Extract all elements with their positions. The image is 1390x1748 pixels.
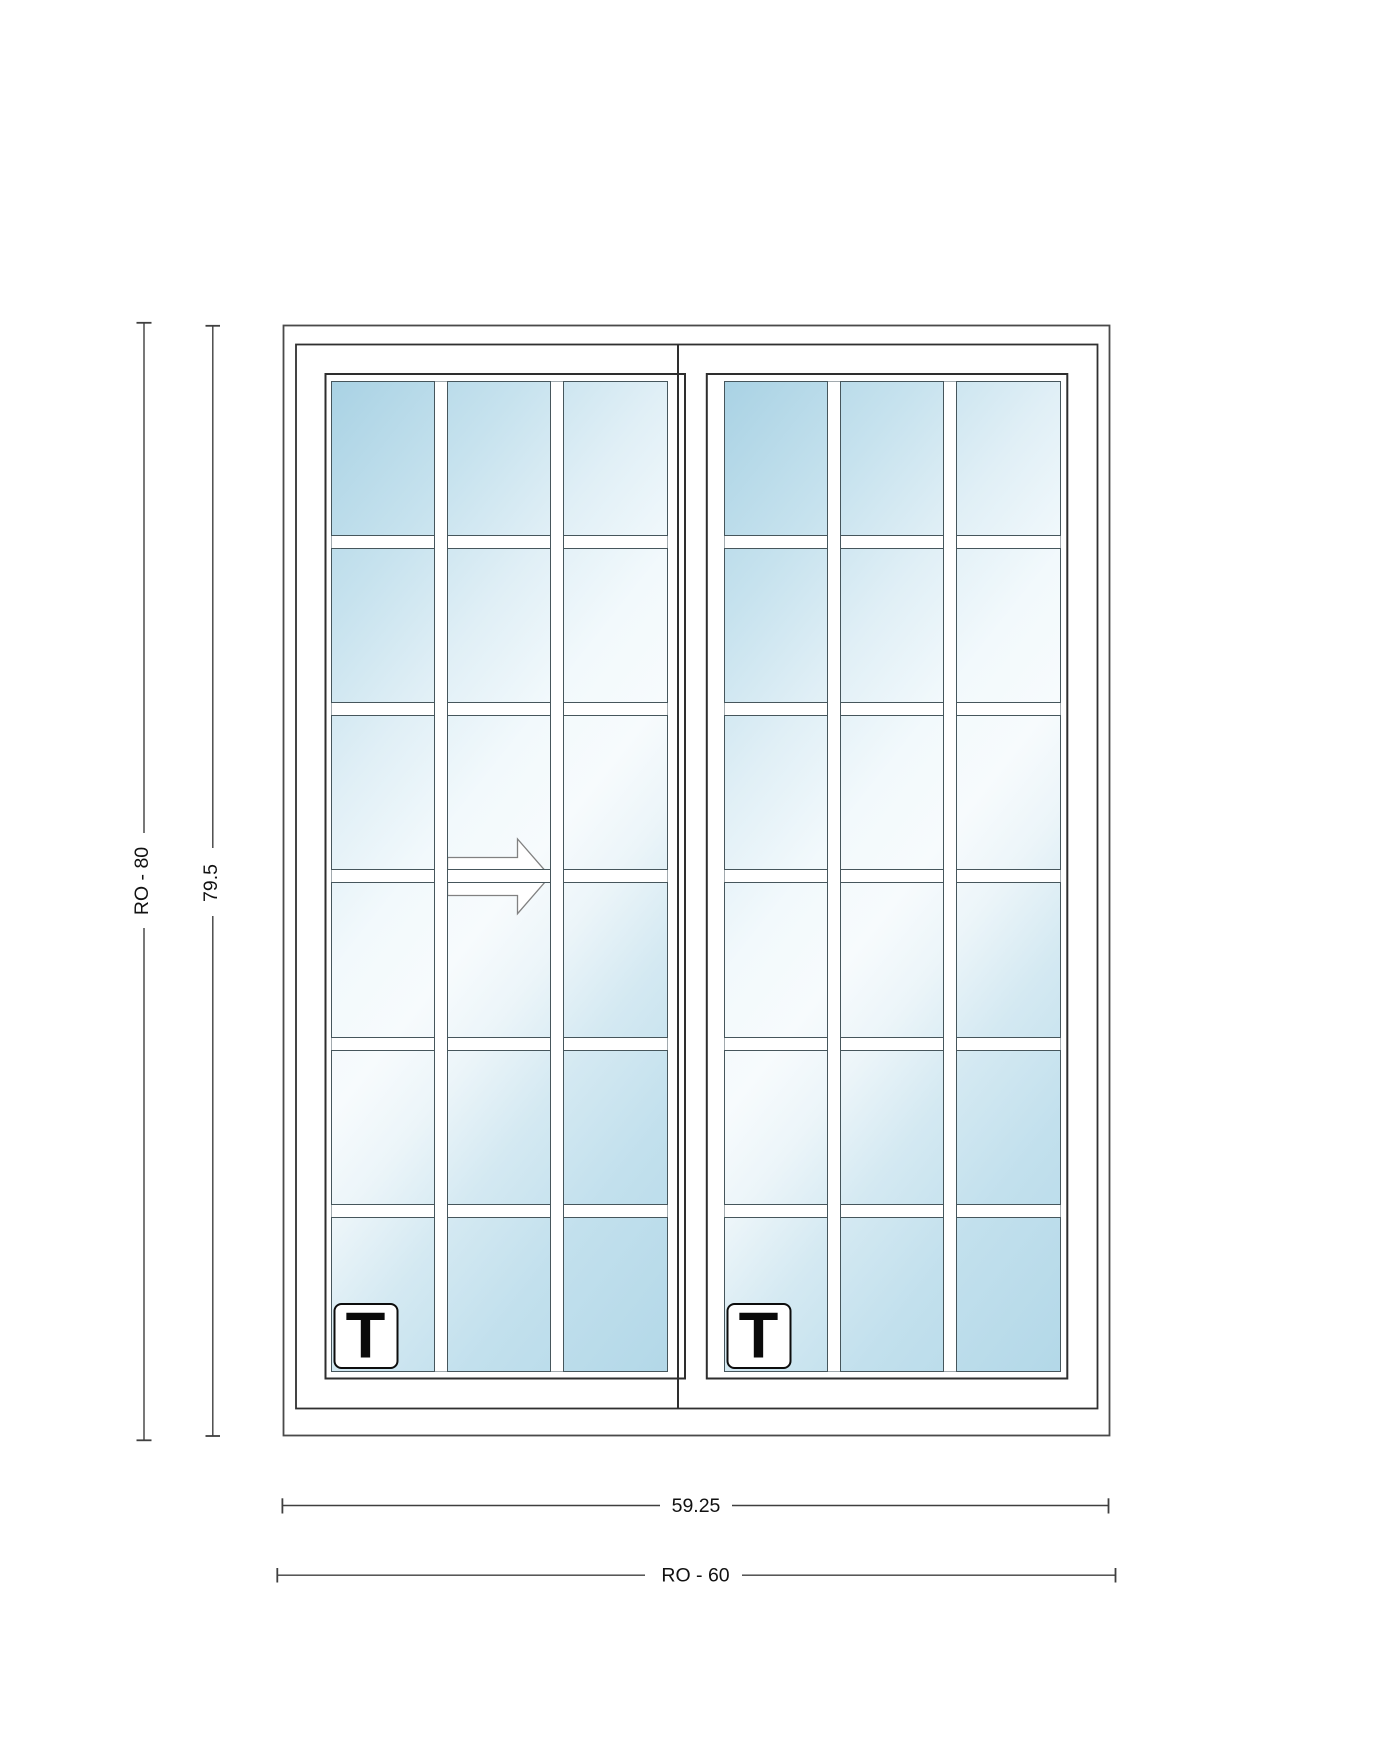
svg-text:59.25: 59.25 [672, 1495, 721, 1517]
svg-text:RO - 80: RO - 80 [131, 847, 153, 915]
svg-text:79.5: 79.5 [200, 864, 222, 902]
svg-text:RO - 60: RO - 60 [661, 1565, 729, 1587]
svg-text:T: T [739, 1299, 779, 1372]
svg-text:T: T [346, 1299, 386, 1372]
